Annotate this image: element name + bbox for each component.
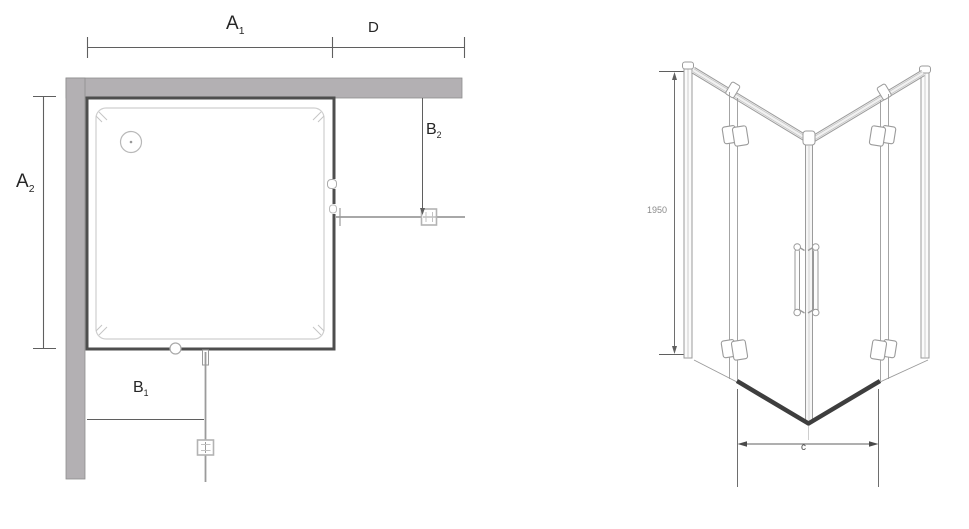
dim-label-d-base: D bbox=[368, 19, 379, 36]
hinge-knob bbox=[328, 180, 337, 189]
hinge-right-top bbox=[869, 124, 896, 148]
dim-label-b1: B1 bbox=[133, 380, 149, 398]
hinge-left-bottom bbox=[721, 338, 748, 362]
dim-label-a2-base: A bbox=[16, 171, 29, 192]
hinge-left-top bbox=[722, 124, 749, 148]
dim-label-height: 1950 bbox=[647, 206, 667, 215]
front-view bbox=[659, 62, 931, 487]
dim-line-a2 bbox=[33, 96, 56, 349]
dim-label-a2: A2 bbox=[16, 172, 35, 195]
technical-drawing-canvas: A1 D A2 B2 B1 1950 c bbox=[0, 0, 969, 529]
plan-view bbox=[33, 37, 465, 482]
dim-line-a1-d bbox=[87, 37, 465, 58]
dim-label-a2-sub: 2 bbox=[29, 184, 35, 195]
drawing-svg bbox=[0, 0, 969, 529]
top-rail-left bbox=[691, 67, 808, 141]
dim-label-b2-base: B bbox=[426, 121, 437, 138]
shower-tray bbox=[87, 98, 334, 349]
wall-left bbox=[66, 78, 85, 479]
hinge-knob bbox=[170, 343, 181, 354]
dim-label-b2-sub: 2 bbox=[437, 130, 442, 140]
wall-profile-right bbox=[920, 66, 931, 358]
top-rail-right bbox=[812, 70, 925, 141]
drain-circle bbox=[121, 132, 142, 153]
dim-label-b1-base: B bbox=[133, 379, 144, 396]
dim-label-a1-sub: 1 bbox=[239, 26, 245, 37]
wall-top bbox=[66, 78, 462, 98]
dim-label-b2: B2 bbox=[426, 122, 442, 140]
hinge-knob bbox=[330, 205, 337, 213]
door-bottom-open bbox=[170, 343, 214, 482]
dim-label-a1-base: A bbox=[226, 13, 239, 34]
handle-left bbox=[794, 244, 805, 316]
dim-label-b1-sub: 1 bbox=[144, 388, 149, 398]
dim-label-d: D bbox=[368, 20, 379, 38]
hinge-right-bottom bbox=[870, 338, 897, 362]
dim-label-a1: A1 bbox=[226, 14, 245, 37]
dim-line-b2 bbox=[420, 98, 425, 215]
door-right-open bbox=[328, 179, 466, 226]
wall-profile-left bbox=[683, 62, 694, 358]
dim-label-width: c bbox=[801, 443, 806, 453]
